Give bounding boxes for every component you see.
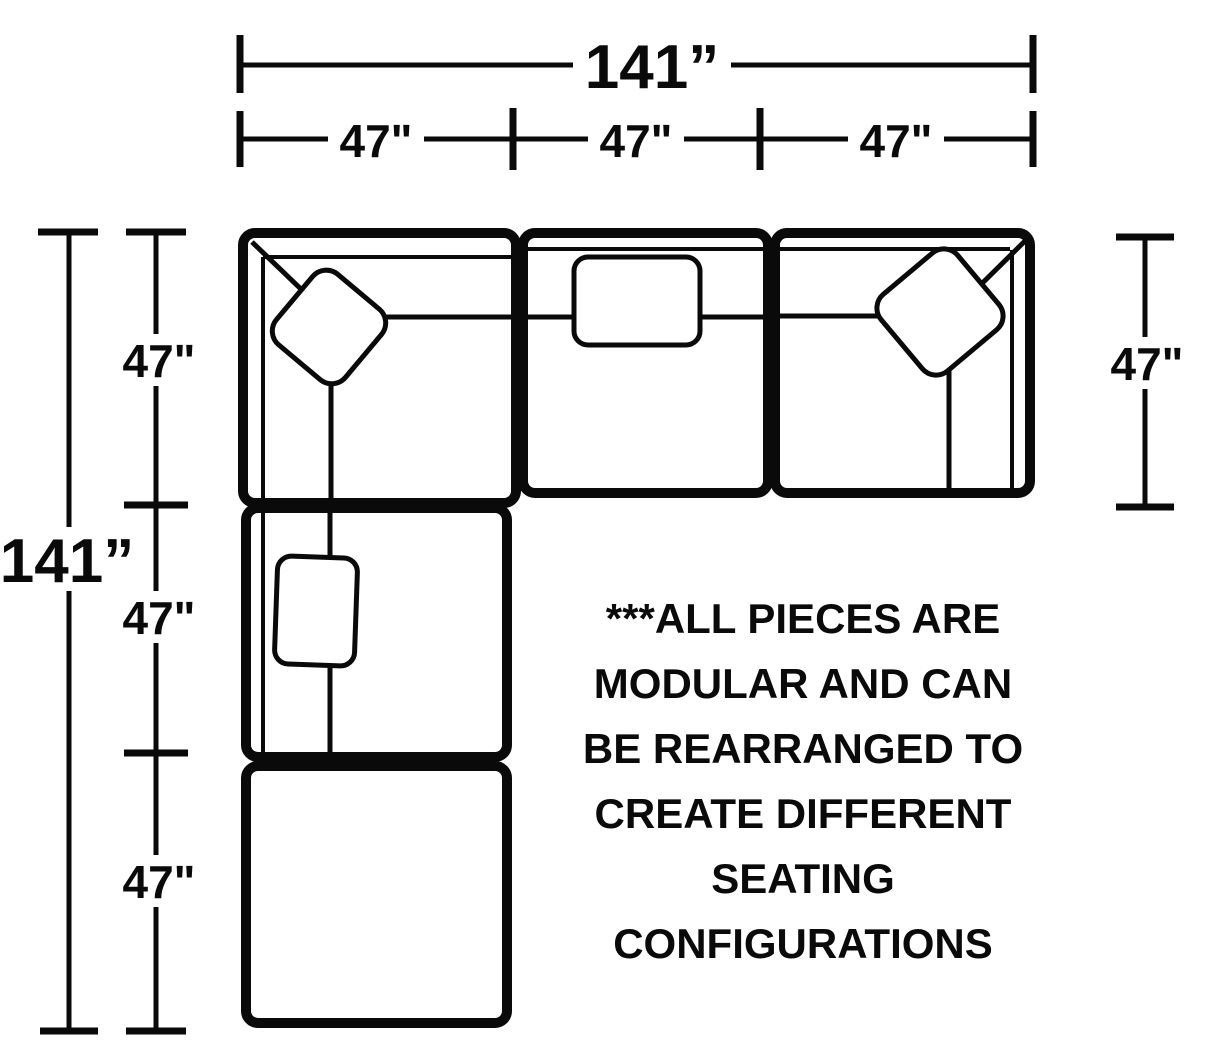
modular-note-line: SEATING — [566, 846, 1040, 911]
modular-note-line: CREATE DIFFERENT — [566, 781, 1040, 846]
dimension-label-segment: 47" — [123, 335, 196, 387]
modular-note-line: CONFIGURATIONS — [566, 911, 1040, 976]
dimension-label-total-height: 141” — [0, 527, 134, 596]
modular-note: ***ALL PIECES ARE MODULAR AND CAN BE REA… — [566, 586, 1040, 976]
sofa-piece-ottoman — [246, 766, 507, 1023]
dimension-left-segments: 47" 47" 47" — [110, 232, 206, 1031]
dimension-right-segment: 47" — [1098, 237, 1194, 507]
diagram-canvas: 141” 47" 47" 47" 141” — [0, 0, 1214, 1060]
modular-note-line: BE REARRANGED TO — [566, 716, 1040, 781]
dimension-label-segment: 47" — [600, 115, 673, 167]
pillow — [274, 556, 358, 667]
modular-note-line: ***ALL PIECES ARE — [566, 586, 1040, 651]
dimension-label-segment: 47" — [1111, 338, 1184, 390]
dimension-label-segment: 47" — [123, 856, 196, 908]
dimension-top-total: 141” — [240, 33, 1033, 102]
dimension-top-segments: 47" 47" 47" — [240, 108, 1033, 170]
dimension-label-segment: 47" — [123, 592, 196, 644]
modular-note-line: MODULAR AND CAN — [566, 651, 1040, 716]
pillow — [574, 257, 700, 345]
dimension-label-segment: 47" — [860, 115, 933, 167]
dimension-label-segment: 47" — [340, 115, 413, 167]
dimension-label-total-width: 141” — [585, 33, 719, 102]
